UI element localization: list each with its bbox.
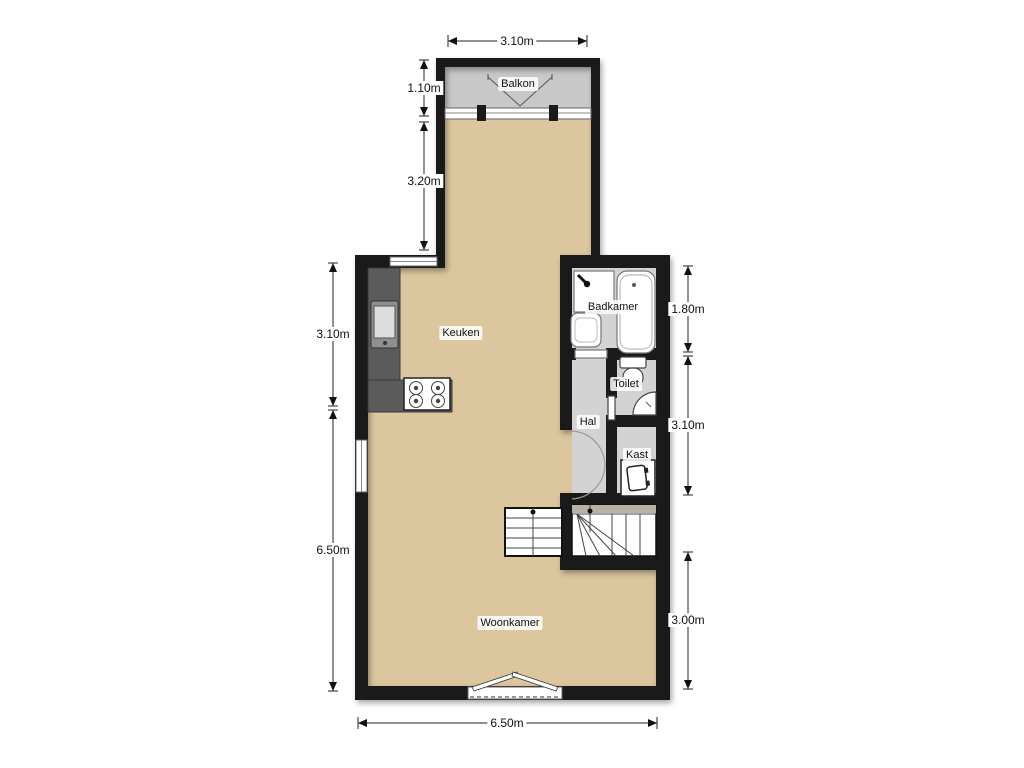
bathtub-faucet (632, 283, 636, 287)
wall-stair-bottom (560, 556, 670, 570)
kitchen-sink-basin (374, 306, 395, 338)
stair-start-dot (531, 510, 536, 515)
wall-balcony-right (591, 58, 600, 118)
wall-balcony-top (436, 58, 600, 67)
dim-hall-side: 3.10m (668, 418, 707, 432)
floorplan-canvas: Balkon Keuken Badkamer Toilet Hal Kast W… (0, 0, 1024, 768)
wall-hall-closet (606, 415, 617, 505)
room-label-living: Woonkamer (477, 616, 542, 630)
boiler-clip (644, 468, 649, 473)
wall-bathroom-top (560, 255, 670, 268)
dim-balcony-depth: 1.10m (404, 81, 443, 95)
floor-plan-drawing (0, 0, 1024, 768)
room-label-closet: Kast (623, 448, 651, 462)
dim-upper-section: 3.20m (404, 174, 443, 188)
wall-right (656, 255, 670, 700)
dim-living-side: 6.50m (313, 543, 352, 557)
room-label-kitchen: Keuken (439, 326, 482, 340)
closet-fixtures (621, 460, 655, 496)
room-label-bathroom: Badkamer (585, 300, 641, 314)
kitchen-sink-faucet (383, 341, 387, 345)
burner-dot (414, 399, 418, 403)
room-label-toilet: Toilet (610, 377, 642, 391)
dim-living-right: 3.00m (668, 613, 707, 627)
dim-bathroom-side: 1.80m (668, 302, 707, 316)
wall-upper-right (591, 112, 600, 262)
balcony-door-post (549, 105, 558, 121)
boiler-clip (645, 481, 650, 486)
burner-dot (436, 386, 440, 390)
dim-kitchen-side: 3.10m (313, 327, 352, 341)
upper-room-floor (445, 112, 591, 268)
dim-top-width: 3.10m (497, 34, 536, 48)
bathroom-door-leaf (575, 350, 607, 358)
straight-stairs-icon (505, 508, 562, 556)
dim-bottom-width: 6.50m (487, 716, 526, 730)
room-label-balcony: Balkon (498, 77, 538, 91)
toilet-tank (620, 357, 646, 368)
winder-start-dot (588, 509, 593, 514)
balcony-door-post (477, 105, 486, 121)
shower-head-dot (584, 281, 590, 287)
room-label-hall: Hal (577, 415, 600, 429)
burner-dot (436, 399, 440, 403)
winder-landing (572, 505, 656, 513)
toilet-door-leaf (608, 396, 615, 420)
winder-stairs-icon (572, 505, 656, 556)
burner-dot (414, 386, 418, 390)
